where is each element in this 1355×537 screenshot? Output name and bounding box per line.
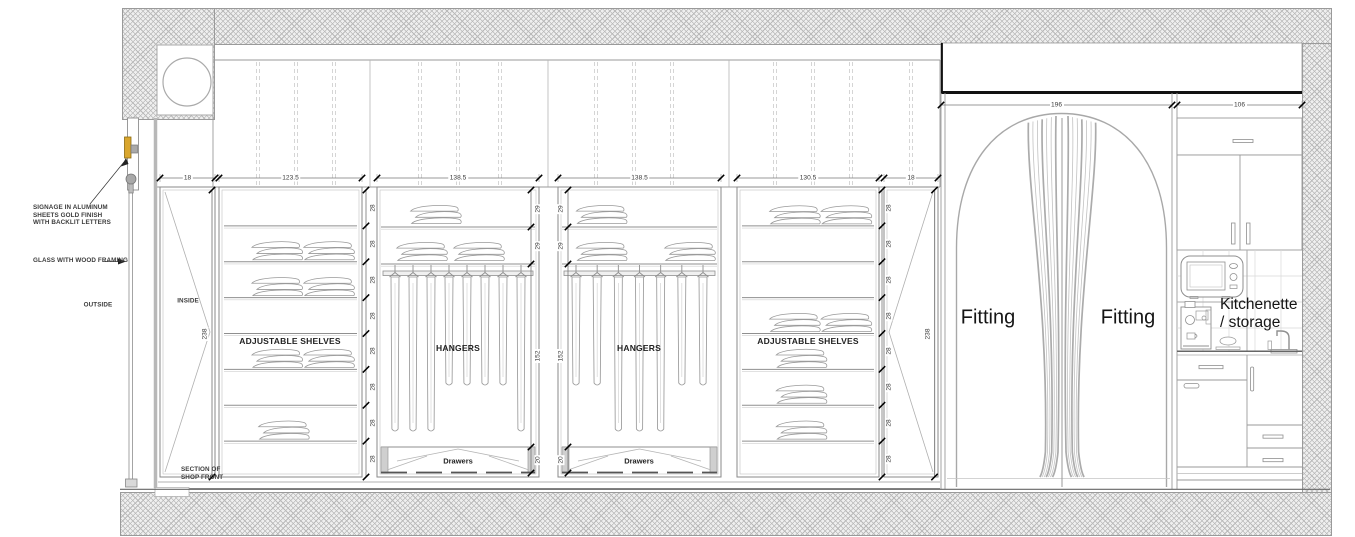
shopfront-elevation-drawing: SIGNAGE IN ALUMINUM SHEETS GOLD FINISH W… <box>0 0 1355 537</box>
fitting-room-label-right: Fitting <box>1101 307 1155 330</box>
signage-annotation-line: WITH BACKLIT LETTERS <box>33 219 111 227</box>
dimension-label: 29 <box>535 203 542 213</box>
dimension-label: 28 <box>886 454 893 464</box>
drawers-label-1: Drawers <box>443 457 473 466</box>
signage-annotation-line: SHEETS GOLD FINISH <box>33 212 111 220</box>
dimension-label: 28 <box>370 346 377 356</box>
hangers-label-2: HANGERS <box>617 343 661 353</box>
dimension-label: 130.5 <box>798 175 818 182</box>
dimension-label: 18 <box>182 175 192 182</box>
dimension-label: 28 <box>370 275 377 285</box>
dimension-label: 152 <box>558 348 565 362</box>
dimension-label: 28 <box>886 418 893 428</box>
kitchenette-label-line: Kitchenette <box>1220 296 1298 314</box>
dimension-label: 28 <box>886 310 893 320</box>
section-of-shopfront-label: SECTION OF SHOP FRONT <box>181 466 223 481</box>
dimension-label: 28 <box>370 310 377 320</box>
dimension-label: 28 <box>886 346 893 356</box>
dimension-label: 29 <box>558 240 565 250</box>
inside-label: INSIDE <box>177 297 199 305</box>
dimension-label: 28 <box>370 418 377 428</box>
signage-annotation-line: SIGNAGE IN ALUMINUM <box>33 204 111 212</box>
dimension-label: 238 <box>924 326 931 340</box>
dimension-label: 106 <box>1232 102 1246 109</box>
fitting-room-label-left: Fitting <box>961 307 1015 330</box>
dimension-label: 18 <box>906 175 916 182</box>
dimension-label: 28 <box>370 239 377 249</box>
outside-label: OUTSIDE <box>84 301 113 309</box>
dimension-label: 28 <box>886 239 893 249</box>
adjustable-shelves-label-2: ADJUSTABLE SHELVES <box>757 336 859 346</box>
dimension-label: 29 <box>535 240 542 250</box>
glass-annotation: GLASS WITH WOOD FRAMING <box>33 257 128 265</box>
adjustable-shelves-label-1: ADJUSTABLE SHELVES <box>239 336 341 346</box>
dimension-label: 196 <box>1049 102 1063 109</box>
signage-annotation: SIGNAGE IN ALUMINUM SHEETS GOLD FINISH W… <box>33 204 111 227</box>
dimension-label: 28 <box>370 203 377 213</box>
dimension-label: 28 <box>370 382 377 392</box>
dimension-label: 138.5 <box>630 175 650 182</box>
dimension-label: 29 <box>558 203 565 213</box>
dimension-label: 152 <box>535 348 542 362</box>
dimension-label: 28 <box>886 382 893 392</box>
dimension-label: 138.5 <box>448 175 468 182</box>
kitchenette-storage-label: Kitchenette / storage <box>1220 296 1298 331</box>
dimension-label: 28 <box>370 454 377 464</box>
hangers-label-1: HANGERS <box>436 343 480 353</box>
dimension-label: 28 <box>886 203 893 213</box>
section-label-line: SHOP FRONT <box>181 474 223 482</box>
dimension-label: 20 <box>535 455 542 465</box>
dimension-label: 238 <box>202 326 209 340</box>
kitchenette-label-line: / storage <box>1220 314 1298 332</box>
section-label-line: SECTION OF <box>181 466 223 474</box>
dimension-label: 28 <box>886 275 893 285</box>
drawers-label-2: Drawers <box>624 457 654 466</box>
dimension-label: 123.5 <box>281 175 301 182</box>
drawing-labels: SIGNAGE IN ALUMINUM SHEETS GOLD FINISH W… <box>0 0 1355 537</box>
dimension-label: 20 <box>558 455 565 465</box>
